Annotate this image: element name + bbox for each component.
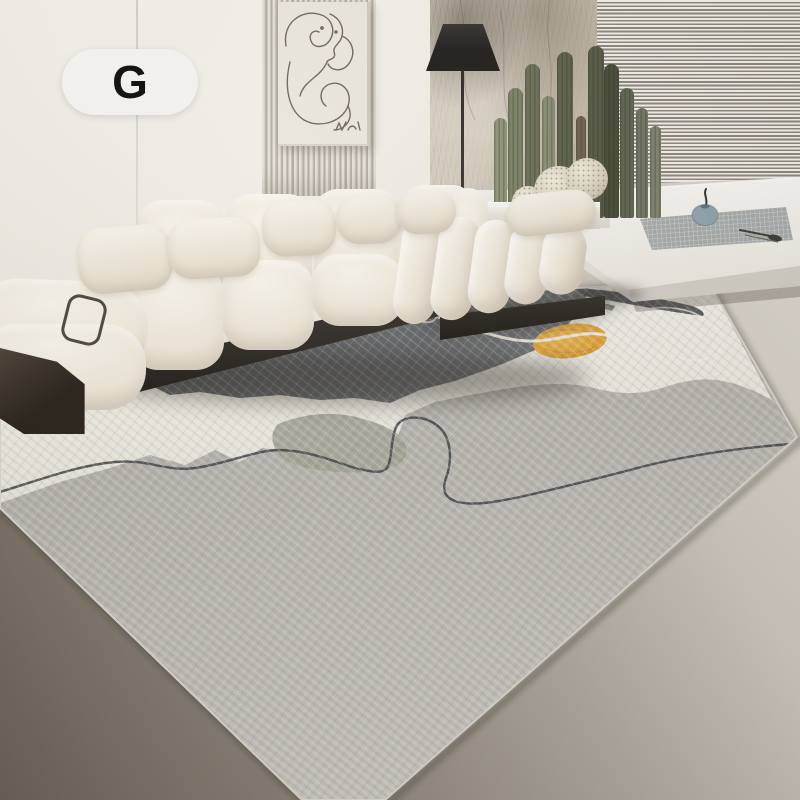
cactus-plant <box>620 88 634 218</box>
throw-pillow <box>75 222 174 296</box>
variant-badge: G <box>62 49 198 115</box>
throw-pillow <box>395 189 456 235</box>
living-room-rug-photo: G <box>0 0 800 800</box>
throw-pillow <box>261 198 338 258</box>
sofa-seat-cushion <box>312 254 404 326</box>
cactus-plant <box>650 126 661 218</box>
throw-pillow <box>166 216 261 281</box>
variant-badge-label: G <box>112 59 148 105</box>
throw-pillow <box>335 193 403 245</box>
cactus-plant <box>604 64 619 218</box>
cactus-plant <box>494 118 507 214</box>
cactus-plant <box>636 108 648 218</box>
